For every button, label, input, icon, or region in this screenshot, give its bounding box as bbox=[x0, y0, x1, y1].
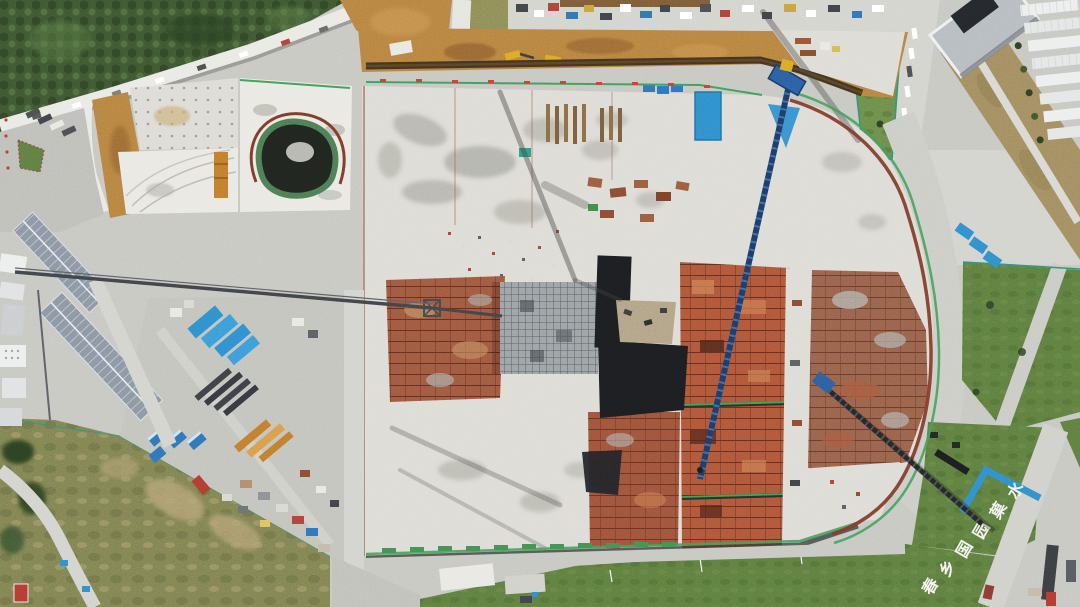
grain-overlay bbox=[0, 0, 1080, 607]
photo-canvas: 水 菓 园 国 乡 春 bbox=[0, 0, 1080, 607]
aerial-photo-construction-site: 水 菓 园 国 乡 春 bbox=[0, 0, 1080, 607]
